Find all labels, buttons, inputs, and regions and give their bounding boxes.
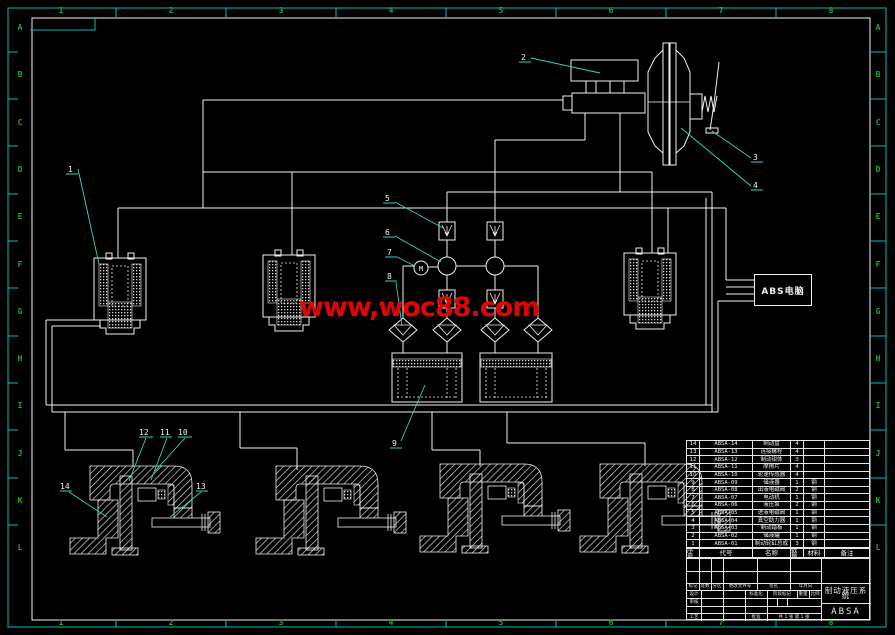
parts-header-name: 名称 xyxy=(753,549,791,557)
zone-col-bottom-4: 4 xyxy=(381,618,401,628)
callout-7: 7 xyxy=(387,248,392,257)
leader-4 xyxy=(681,128,751,186)
zone-row-right-J: J xyxy=(868,449,888,459)
brake-assembly-3 xyxy=(420,464,570,553)
accumulator-left xyxy=(392,353,462,402)
parts-cell-rem xyxy=(825,510,869,517)
zone-row-left-B: B xyxy=(10,70,30,80)
parts-header-material: 材料 xyxy=(804,549,825,557)
parts-cell-rem xyxy=(825,517,869,524)
parts-cell-seq: 3 xyxy=(687,525,700,532)
parts-table-rows: 14ABSA-14制动盘413ABSA-13连接螺栓412ABSA-12制动钳体… xyxy=(687,441,869,547)
parts-cell-mat: 钢 xyxy=(804,479,825,486)
parts-header-seq: 序号 xyxy=(687,549,700,557)
zone-row-right-E: E xyxy=(868,212,888,222)
reservoir xyxy=(571,60,638,81)
parts-cell-rem xyxy=(825,464,869,471)
callout-6: 6 xyxy=(385,228,390,237)
pipe-network xyxy=(46,100,754,470)
parts-cell-name: 出液电磁阀 xyxy=(753,487,791,494)
zone-col-bottom-5: 5 xyxy=(491,618,511,628)
tb-design: 设计 xyxy=(687,590,701,598)
parts-cell-code: ABSA-10 xyxy=(700,472,753,479)
zone-row-left-D: D xyxy=(10,165,30,175)
zone-col-top-4: 4 xyxy=(381,6,401,16)
parts-cell-name: 制动钳体 xyxy=(753,456,791,463)
tb-approve: 批准 xyxy=(745,613,767,621)
parts-cell-qty: 4 xyxy=(791,441,804,448)
parts-header-code: 代号 xyxy=(700,549,753,557)
parts-cell-qty: 4 xyxy=(791,464,804,471)
parts-cell-mat: 钢 xyxy=(804,525,825,532)
parts-row: 4ABSA-04真空助力器1钢 xyxy=(687,517,869,525)
parts-cell-name: 储液罐 xyxy=(753,533,791,540)
parts-cell-mat xyxy=(804,449,825,456)
abs-ecu-label: ABS电脑 xyxy=(761,284,804,297)
parts-cell-code: ABSA-14 xyxy=(700,441,753,448)
leader-lines xyxy=(60,58,763,517)
parts-cell-mat: 钢 xyxy=(804,494,825,501)
leader-9 xyxy=(401,385,425,441)
zone-row-right-L: L xyxy=(868,543,888,553)
parts-cell-code: ABSA-12 xyxy=(700,456,753,463)
parts-cell-rem xyxy=(825,479,869,486)
zone-row-right-G: G xyxy=(868,307,888,317)
parts-cell-rem xyxy=(825,525,869,532)
parts-row: 6ABSA-06液压泵2钢 xyxy=(687,502,869,510)
zone-col-bottom-3: 3 xyxy=(271,618,291,628)
pump-circle-right xyxy=(486,257,504,275)
parts-row: 5ABSA-05进液电磁阀1钢 xyxy=(687,510,869,518)
parts-row: 12ABSA-12制动钳体3 xyxy=(687,456,869,464)
tb-process: 工艺 xyxy=(687,613,701,621)
parts-cell-mat: 钢 xyxy=(804,540,825,547)
tb-rev-date: 年月日 xyxy=(790,583,821,590)
parts-cell-code: ABSA-01 xyxy=(700,540,753,547)
parts-cell-seq: 12 xyxy=(687,456,700,463)
parts-row: 3ABSA-03制动踏板1钢 xyxy=(687,525,869,533)
parts-cell-qty: 3 xyxy=(791,456,804,463)
parts-cell-seq: 10 xyxy=(687,472,700,479)
parts-cell-rem xyxy=(825,533,869,540)
tb-rev-zone: 分区 xyxy=(711,583,723,590)
parts-cell-code: ABSA-02 xyxy=(700,533,753,540)
tb-stage: 阶段标记 xyxy=(767,590,797,598)
parts-row: 14ABSA-14制动盘4 xyxy=(687,441,869,449)
tb-rev-mark: 标记 xyxy=(687,583,699,590)
zone-row-right-H: H xyxy=(868,354,888,364)
parts-cell-qty: 1 xyxy=(791,510,804,517)
parts-cell-seq: 8 xyxy=(687,487,700,494)
parts-cell-code: ABSA-09 xyxy=(700,479,753,486)
parts-row: 1ABSA-01制动轮缸总成3钢 xyxy=(687,540,869,547)
parts-table-header: 序号 代号 名称 数量 材料 备注 xyxy=(686,548,870,558)
parts-cell-rem xyxy=(825,540,869,547)
parts-row: 2ABSA-02储液罐1钢 xyxy=(687,533,869,541)
parts-cell-qty: 1 xyxy=(791,517,804,524)
parts-cell-qty: 4 xyxy=(791,449,804,456)
parts-cell-code: ABSA-06 xyxy=(700,502,753,509)
parts-cell-code: ABSA-04 xyxy=(700,517,753,524)
corner-mark xyxy=(30,18,95,30)
parts-cell-seq: 2 xyxy=(687,533,700,540)
parts-cell-rem xyxy=(825,441,869,448)
wheel-cylinder-3 xyxy=(624,248,676,329)
parts-cell-seq: 13 xyxy=(687,449,700,456)
tb-standard: 标准化 xyxy=(745,590,767,598)
zone-row-left-K: K xyxy=(10,496,30,506)
leader-3 xyxy=(712,131,751,158)
callout-4: 4 xyxy=(753,181,758,190)
parts-cell-name: 制动踏板 xyxy=(753,525,791,532)
parts-cell-seq: 11 xyxy=(687,464,700,471)
parts-cell-name: 进液电磁阀 xyxy=(753,510,791,517)
callout-13: 13 xyxy=(196,482,206,491)
vacuum-booster xyxy=(648,43,690,165)
parts-cell-code: ABSA-07 xyxy=(700,494,753,501)
master-cylinder xyxy=(572,93,645,113)
parts-cell-mat: 钢 xyxy=(804,502,825,509)
wheel-cylinder-1 xyxy=(94,253,146,334)
tb-rev-sign: 签名 xyxy=(757,583,790,590)
leader-5 xyxy=(395,202,443,228)
callout-14: 14 xyxy=(60,482,70,491)
zone-row-left-G: G xyxy=(10,307,30,317)
parts-cell-name: 真空助力器 xyxy=(753,517,791,524)
parts-cell-qty: 1 xyxy=(791,533,804,540)
leader-7 xyxy=(397,257,415,266)
parts-cell-seq: 7 xyxy=(687,494,700,501)
zone-col-top-8: 8 xyxy=(821,6,841,16)
parts-cell-name: 制动盘 xyxy=(753,441,791,448)
zone-col-bottom-2: 2 xyxy=(161,618,181,628)
parts-row: 7ABSA-07电动机1钢 xyxy=(687,494,869,502)
callout-9: 9 xyxy=(392,439,397,448)
parts-cell-qty: 4 xyxy=(791,472,804,479)
parts-cell-rem xyxy=(825,456,869,463)
zone-col-top-7: 7 xyxy=(711,6,731,16)
callout-1: 1 xyxy=(68,165,73,174)
parts-cell-mat: 钢 xyxy=(804,517,825,524)
zone-row-right-C: C xyxy=(868,118,888,128)
callout-12: 12 xyxy=(139,428,149,437)
inlet-valve-left xyxy=(439,222,455,240)
parts-cell-seq: 9 xyxy=(687,479,700,486)
zone-row-right-K: K xyxy=(868,496,888,506)
title-block: 标记 处数 分区 更改文件号 签名 年月日 设计 审核 工艺 标准化 批准 阶段… xyxy=(686,558,870,620)
parts-row: 13ABSA-13连接螺栓4 xyxy=(687,449,869,457)
leader-6 xyxy=(395,236,441,262)
zone-row-right-B: B xyxy=(868,70,888,80)
parts-cell-code: ABSA-03 xyxy=(700,525,753,532)
zone-row-right-A: A xyxy=(868,23,888,33)
parts-cell-name: 摩擦片 xyxy=(753,464,791,471)
zone-row-right-I: I xyxy=(868,401,888,411)
brake-assembly-1 xyxy=(70,466,220,555)
abs-ecu-box: ABS电脑 xyxy=(754,274,812,306)
zone-row-left-L: L xyxy=(10,543,30,553)
parts-cell-mat xyxy=(804,464,825,471)
parts-cell-name: 电动机 xyxy=(753,494,791,501)
zone-col-top-2: 2 xyxy=(161,6,181,16)
tb-weight: 重量 xyxy=(797,590,809,598)
tb-review: 审核 xyxy=(687,598,701,606)
motor-circle: M xyxy=(414,261,428,275)
zone-row-left-A: A xyxy=(10,23,30,33)
drawing-number: ABSA xyxy=(821,603,871,621)
zone-col-top-3: 3 xyxy=(271,6,291,16)
zone-col-bottom-1: 1 xyxy=(51,618,71,628)
zone-row-right-D: D xyxy=(868,165,888,175)
callout-11: 11 xyxy=(160,428,170,437)
parts-cell-qty: 1 xyxy=(791,479,804,486)
parts-cell-name: 制动轮缸总成 xyxy=(753,540,791,547)
parts-cell-code: ABSA-11 xyxy=(700,464,753,471)
zone-col-bottom-6: 6 xyxy=(601,618,621,628)
zone-col-top-1: 1 xyxy=(51,6,71,16)
parts-cell-seq: 1 xyxy=(687,540,700,547)
parts-cell-code: ABSA-13 xyxy=(700,449,753,456)
zone-row-left-C: C xyxy=(10,118,30,128)
callout-3: 3 xyxy=(753,153,758,162)
callout-8: 8 xyxy=(387,272,392,281)
leader-1 xyxy=(78,169,99,264)
parts-cell-rem xyxy=(825,494,869,501)
zone-row-left-F: F xyxy=(10,260,30,270)
zone-row-left-J: J xyxy=(10,449,30,459)
tb-rev-count: 处数 xyxy=(699,583,711,590)
parts-row: 11ABSA-11摩擦片4 xyxy=(687,464,869,472)
cad-sheet: M 1 xyxy=(0,0,895,635)
parts-cell-mat: 钢 xyxy=(804,533,825,540)
brake-assembly-2 xyxy=(256,466,406,555)
callout-5: 5 xyxy=(385,194,390,203)
motor-label: M xyxy=(419,265,423,273)
callout-10: 10 xyxy=(178,428,188,437)
parts-cell-qty: 1 xyxy=(791,525,804,532)
parts-cell-mat xyxy=(804,441,825,448)
parts-cell-rem xyxy=(825,449,869,456)
parts-table: 14ABSA-14制动盘413ABSA-13连接螺栓412ABSA-12制动钳体… xyxy=(686,440,870,548)
zone-row-left-E: E xyxy=(10,212,30,222)
parts-cell-mat: 钢 xyxy=(804,510,825,517)
pump-circle-left xyxy=(438,257,456,275)
parts-row: 8ABSA-08出液电磁阀2钢 xyxy=(687,487,869,495)
leader-underlines xyxy=(60,62,763,491)
parts-row: 9ABSA-09储液器1钢 xyxy=(687,479,869,487)
accumulator-right xyxy=(480,353,552,402)
parts-header-remark: 备注 xyxy=(825,549,869,557)
parts-cell-rem xyxy=(825,487,869,494)
master-cylinder-assembly xyxy=(563,43,719,165)
tb-scale: 比例 xyxy=(809,590,821,598)
parts-cell-name: 连接螺栓 xyxy=(753,449,791,456)
parts-cell-seq: 14 xyxy=(687,441,700,448)
zone-col-top-5: 5 xyxy=(491,6,511,16)
parts-cell-seq: 5 xyxy=(687,510,700,517)
inlet-valve-right xyxy=(487,222,503,240)
callout-2: 2 xyxy=(521,53,526,62)
parts-cell-rem xyxy=(825,472,869,479)
parts-cell-name: 液压泵 xyxy=(753,502,791,509)
watermark: www,woc88.com xyxy=(299,292,539,323)
parts-cell-qty: 2 xyxy=(791,487,804,494)
zone-row-right-F: F xyxy=(868,260,888,270)
parts-cell-qty: 2 xyxy=(791,502,804,509)
tb-rev-doc: 更改文件号 xyxy=(723,583,757,590)
parts-cell-seq: 4 xyxy=(687,517,700,524)
parts-cell-seq: 6 xyxy=(687,502,700,509)
parts-cell-code: ABSA-05 xyxy=(700,510,753,517)
parts-cell-name: 储液器 xyxy=(753,479,791,486)
tb-sheet-info: 共 1 张 第 1 张 xyxy=(767,613,821,621)
zone-row-left-I: I xyxy=(10,401,30,411)
zone-row-left-H: H xyxy=(10,354,30,364)
parts-cell-qty: 1 xyxy=(791,494,804,501)
zone-col-top-6: 6 xyxy=(601,6,621,16)
parts-cell-qty: 3 xyxy=(791,540,804,547)
parts-cell-name: 轮速传感器 xyxy=(753,472,791,479)
parts-row: 10ABSA-10轮速传感器4 xyxy=(687,472,869,480)
drawing-title: 制动液压系统 xyxy=(821,583,871,603)
parts-cell-mat xyxy=(804,472,825,479)
parts-cell-rem xyxy=(825,502,869,509)
callout-labels: 1 2 3 4 5 6 7 8 9 10 11 12 13 14 xyxy=(60,53,758,491)
parts-header-qty: 数量 xyxy=(791,549,804,557)
parts-cell-code: ABSA-08 xyxy=(700,487,753,494)
parts-cell-mat xyxy=(804,456,825,463)
parts-cell-mat: 钢 xyxy=(804,487,825,494)
